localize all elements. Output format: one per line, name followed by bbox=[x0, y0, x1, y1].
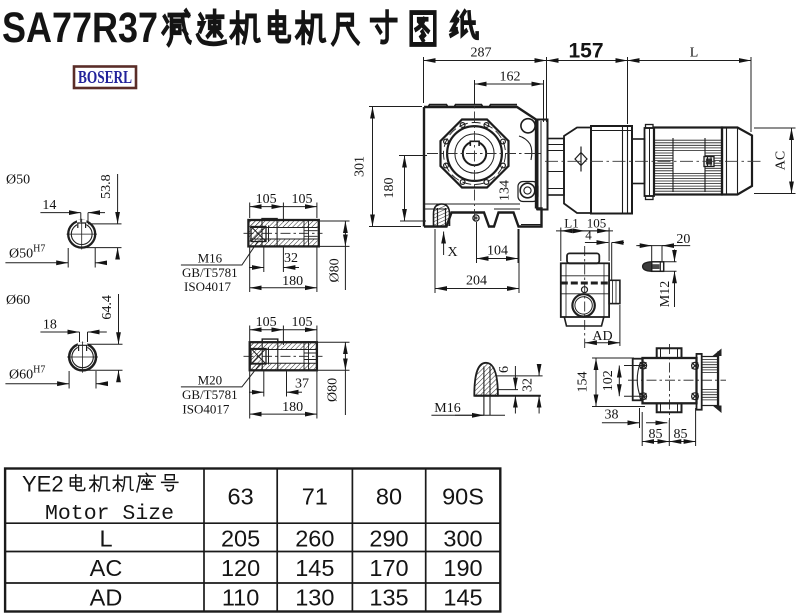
svg-text:ISO4017: ISO4017 bbox=[184, 279, 231, 294]
svg-text:M16: M16 bbox=[198, 251, 223, 266]
svg-text:300: 300 bbox=[443, 526, 482, 552]
svg-text:287: 287 bbox=[471, 46, 492, 61]
svg-text:ISO4017: ISO4017 bbox=[182, 402, 229, 417]
svg-text:Ø50: Ø50 bbox=[6, 173, 30, 188]
svg-text:90S: 90S bbox=[442, 483, 484, 509]
svg-text:105: 105 bbox=[256, 315, 277, 330]
svg-text:18: 18 bbox=[43, 318, 57, 333]
svg-text:85: 85 bbox=[674, 427, 688, 442]
svg-text:120: 120 bbox=[221, 555, 260, 581]
svg-text:157: 157 bbox=[568, 40, 603, 63]
svg-text:Ø80: Ø80 bbox=[325, 378, 340, 402]
svg-text:Ø80: Ø80 bbox=[327, 258, 342, 282]
svg-text:GB/T5781: GB/T5781 bbox=[182, 387, 238, 402]
svg-text:X: X bbox=[448, 245, 458, 260]
svg-text:38: 38 bbox=[605, 408, 619, 423]
svg-text:130: 130 bbox=[295, 585, 334, 611]
svg-text:SA77R37: SA77R37 bbox=[2, 4, 158, 52]
svg-text:AC: AC bbox=[774, 151, 789, 170]
svg-text:L1: L1 bbox=[564, 216, 578, 231]
svg-text:Ø60: Ø60 bbox=[6, 293, 30, 308]
svg-text:32: 32 bbox=[284, 251, 298, 266]
svg-text:6: 6 bbox=[497, 366, 512, 373]
svg-text:64.4: 64.4 bbox=[100, 295, 115, 320]
svg-text:37: 37 bbox=[295, 377, 309, 392]
svg-text:190: 190 bbox=[443, 555, 482, 581]
svg-text:71: 71 bbox=[302, 483, 328, 509]
svg-text:53.8: 53.8 bbox=[99, 174, 114, 199]
svg-text:GB/T5781: GB/T5781 bbox=[182, 265, 238, 280]
svg-text:260: 260 bbox=[295, 526, 334, 552]
svg-text:85: 85 bbox=[649, 427, 663, 442]
svg-text:145: 145 bbox=[295, 555, 334, 581]
svg-text:180: 180 bbox=[382, 178, 397, 199]
svg-text:AC: AC bbox=[90, 555, 123, 581]
svg-text:AD: AD bbox=[592, 329, 612, 344]
svg-text:180: 180 bbox=[282, 274, 303, 289]
svg-text:145: 145 bbox=[443, 585, 482, 611]
svg-text:105: 105 bbox=[292, 315, 313, 330]
svg-text:BOSERL: BOSERL bbox=[78, 67, 132, 87]
svg-text:180: 180 bbox=[282, 400, 303, 415]
svg-text:105: 105 bbox=[292, 192, 313, 207]
svg-text:L: L bbox=[690, 46, 699, 61]
svg-text:YE2: YE2 bbox=[22, 472, 64, 497]
svg-text:154: 154 bbox=[576, 372, 591, 393]
svg-text:L: L bbox=[99, 526, 112, 552]
svg-text:32: 32 bbox=[521, 378, 536, 392]
svg-text:104: 104 bbox=[487, 244, 508, 259]
svg-text:AD: AD bbox=[90, 585, 123, 611]
svg-text:80: 80 bbox=[376, 483, 402, 509]
svg-text:170: 170 bbox=[369, 555, 408, 581]
svg-text:205: 205 bbox=[221, 526, 260, 552]
svg-text:M12: M12 bbox=[658, 281, 673, 307]
svg-text:Motor Size: Motor Size bbox=[45, 502, 174, 526]
svg-text:204: 204 bbox=[466, 274, 487, 289]
svg-text:301: 301 bbox=[353, 156, 368, 177]
svg-text:4: 4 bbox=[585, 228, 592, 243]
svg-text:134: 134 bbox=[498, 180, 513, 201]
svg-text:105: 105 bbox=[256, 192, 277, 207]
svg-text:20: 20 bbox=[676, 232, 690, 247]
svg-text:63: 63 bbox=[228, 483, 254, 509]
svg-text:162: 162 bbox=[500, 70, 521, 85]
svg-text:M16: M16 bbox=[434, 401, 460, 416]
svg-text:110: 110 bbox=[222, 585, 259, 611]
svg-text:102: 102 bbox=[601, 370, 616, 391]
svg-text:290: 290 bbox=[369, 526, 408, 552]
svg-text:14: 14 bbox=[42, 198, 56, 213]
svg-text:135: 135 bbox=[369, 585, 408, 611]
svg-text:M20: M20 bbox=[198, 373, 223, 388]
